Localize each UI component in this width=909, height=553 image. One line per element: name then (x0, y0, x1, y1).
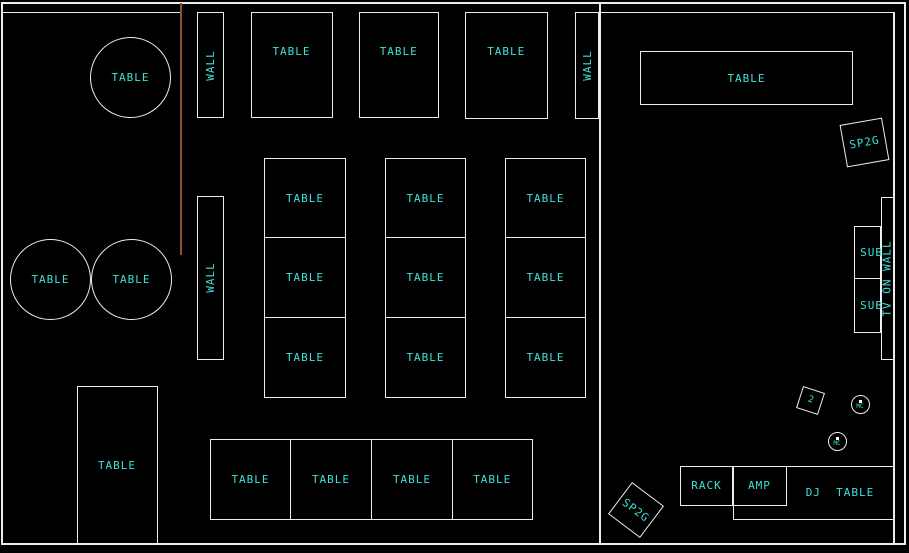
wall-segment-middle: WALL (197, 196, 224, 360)
wall-segment-top-left-label: WALL (205, 50, 216, 81)
mic-circle-2: MC (828, 432, 847, 451)
round-table-left-1-label: TABLE (31, 274, 69, 285)
speaker-sp2g-top-label: SP2G (848, 134, 880, 150)
mic-circle-1-label: MC (856, 404, 863, 410)
bottom-table-4-label: TABLE (473, 474, 511, 485)
rack: RACK (680, 466, 733, 507)
grid-table-r3c1: TABLE (264, 317, 346, 398)
grid-table-r2c3-label: TABLE (526, 272, 564, 283)
mic-circle-2-label: MC (833, 441, 840, 447)
tv-on-wall: TV ON WALL (881, 197, 894, 360)
grid-table-r1c2-label: TABLE (406, 193, 444, 204)
top-table-1: TABLE (251, 12, 333, 118)
top-table-2: TABLE (359, 12, 439, 118)
sub-speaker-1-label: SUB (860, 247, 883, 258)
dj-table: DJ TABLE (733, 466, 894, 520)
sub-speaker-2: SUB (854, 278, 882, 333)
grid-table-r1c2: TABLE (385, 158, 466, 238)
grid-table-r1c1-label: TABLE (286, 193, 324, 204)
banquet-table: TABLE (640, 51, 853, 105)
floor-plan-canvas: TABLEWALLTABLETABLETABLEWALLTABLESP2GTV … (0, 0, 909, 553)
bottom-table-3: TABLE (371, 439, 453, 520)
round-table-top-left-label: TABLE (111, 72, 149, 83)
grid-table-r3c2: TABLE (385, 317, 466, 398)
wall-segment-middle-label: WALL (205, 263, 216, 294)
grid-table-r1c1: TABLE (264, 158, 346, 238)
monitor-speaker-label: 2 (807, 395, 815, 405)
grid-table-r1c3: TABLE (505, 158, 586, 238)
round-table-left-2: TABLE (91, 239, 172, 320)
top-table-1-label: TABLE (272, 46, 310, 57)
bottom-table-1: TABLE (210, 439, 291, 520)
round-table-left-1: TABLE (10, 239, 91, 320)
bottom-table-2: TABLE (290, 439, 372, 520)
tall-table: TABLE (77, 386, 158, 544)
grid-table-r3c2-label: TABLE (406, 352, 444, 363)
wall-line-top-left (1, 12, 181, 14)
banquet-table-label: TABLE (727, 73, 765, 84)
grid-table-r2c3: TABLE (505, 237, 586, 318)
grid-table-r2c2: TABLE (385, 237, 466, 318)
tv-on-wall-label: TV ON WALL (882, 240, 893, 316)
mic-circle-1: MC (851, 395, 870, 414)
top-table-3-label: TABLE (487, 46, 525, 57)
guide-line (180, 3, 182, 255)
bottom-table-2-label: TABLE (312, 474, 350, 485)
grid-table-r1c3-label: TABLE (526, 193, 564, 204)
dj-table-label: DJ TABLE (806, 487, 875, 498)
round-table-top-left: TABLE (90, 37, 171, 118)
grid-table-r2c1-label: TABLE (286, 272, 324, 283)
sub-speaker-1: SUB (854, 226, 882, 279)
wall-segment-top-right: WALL (575, 12, 599, 119)
bottom-table-1-label: TABLE (231, 474, 269, 485)
top-table-3: TABLE (465, 12, 548, 119)
top-table-2-label: TABLE (380, 46, 418, 57)
wall-line-divider (599, 3, 601, 544)
grid-table-r3c1-label: TABLE (286, 352, 324, 363)
grid-table-r2c1: TABLE (264, 237, 346, 318)
grid-table-r3c3: TABLE (505, 317, 586, 398)
wall-segment-top-left: WALL (197, 12, 224, 118)
bottom-table-4: TABLE (452, 439, 533, 520)
speaker-sp2g-bottom-label: SP2G (621, 496, 652, 523)
wall-segment-top-right-label: WALL (582, 50, 593, 81)
speaker-sp2g-top: SP2G (839, 117, 889, 167)
tall-table-label: TABLE (98, 460, 136, 471)
bottom-table-3-label: TABLE (393, 474, 431, 485)
round-table-left-2-label: TABLE (112, 274, 150, 285)
sub-speaker-2-label: SUB (860, 300, 883, 311)
grid-table-r2c2-label: TABLE (406, 272, 444, 283)
grid-table-r3c3-label: TABLE (526, 352, 564, 363)
wall-line-top-right (600, 12, 894, 14)
rack-label: RACK (691, 480, 722, 491)
